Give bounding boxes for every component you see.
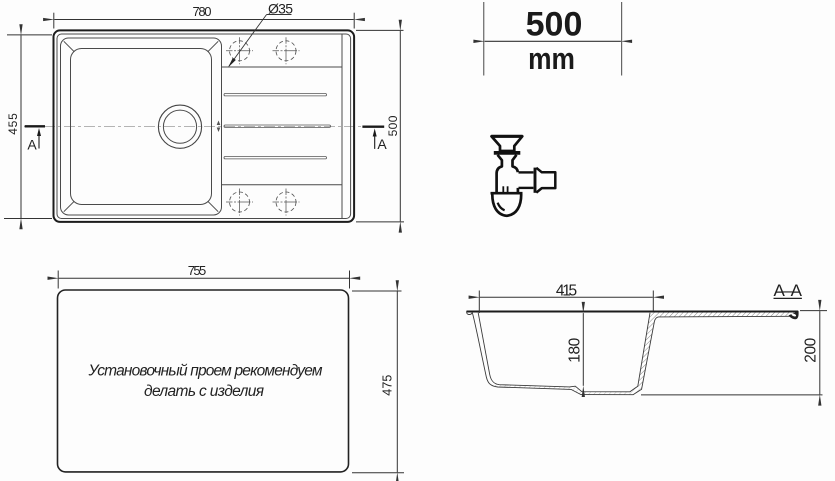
svg-text:415: 415 — [556, 283, 577, 300]
svg-text:A: A — [27, 137, 37, 153]
svg-text:780: 780 — [193, 4, 212, 19]
svg-text:200: 200 — [802, 337, 819, 362]
svg-text:Установочный проем рекомендуем: Установочный проем рекомендуем — [88, 363, 323, 380]
svg-text:500: 500 — [526, 5, 583, 43]
svg-text:755: 755 — [188, 263, 207, 278]
svg-text:180: 180 — [566, 337, 583, 362]
svg-text:A–A: A–A — [773, 281, 802, 300]
svg-text:Ø35: Ø35 — [268, 0, 293, 16]
svg-text:455: 455 — [6, 113, 20, 135]
svg-text:делать с изделия: делать с изделия — [144, 383, 264, 400]
svg-text:500: 500 — [386, 115, 400, 136]
svg-text:mm: mm — [528, 42, 575, 76]
svg-text:A: A — [377, 136, 387, 152]
svg-text:475: 475 — [380, 375, 394, 396]
